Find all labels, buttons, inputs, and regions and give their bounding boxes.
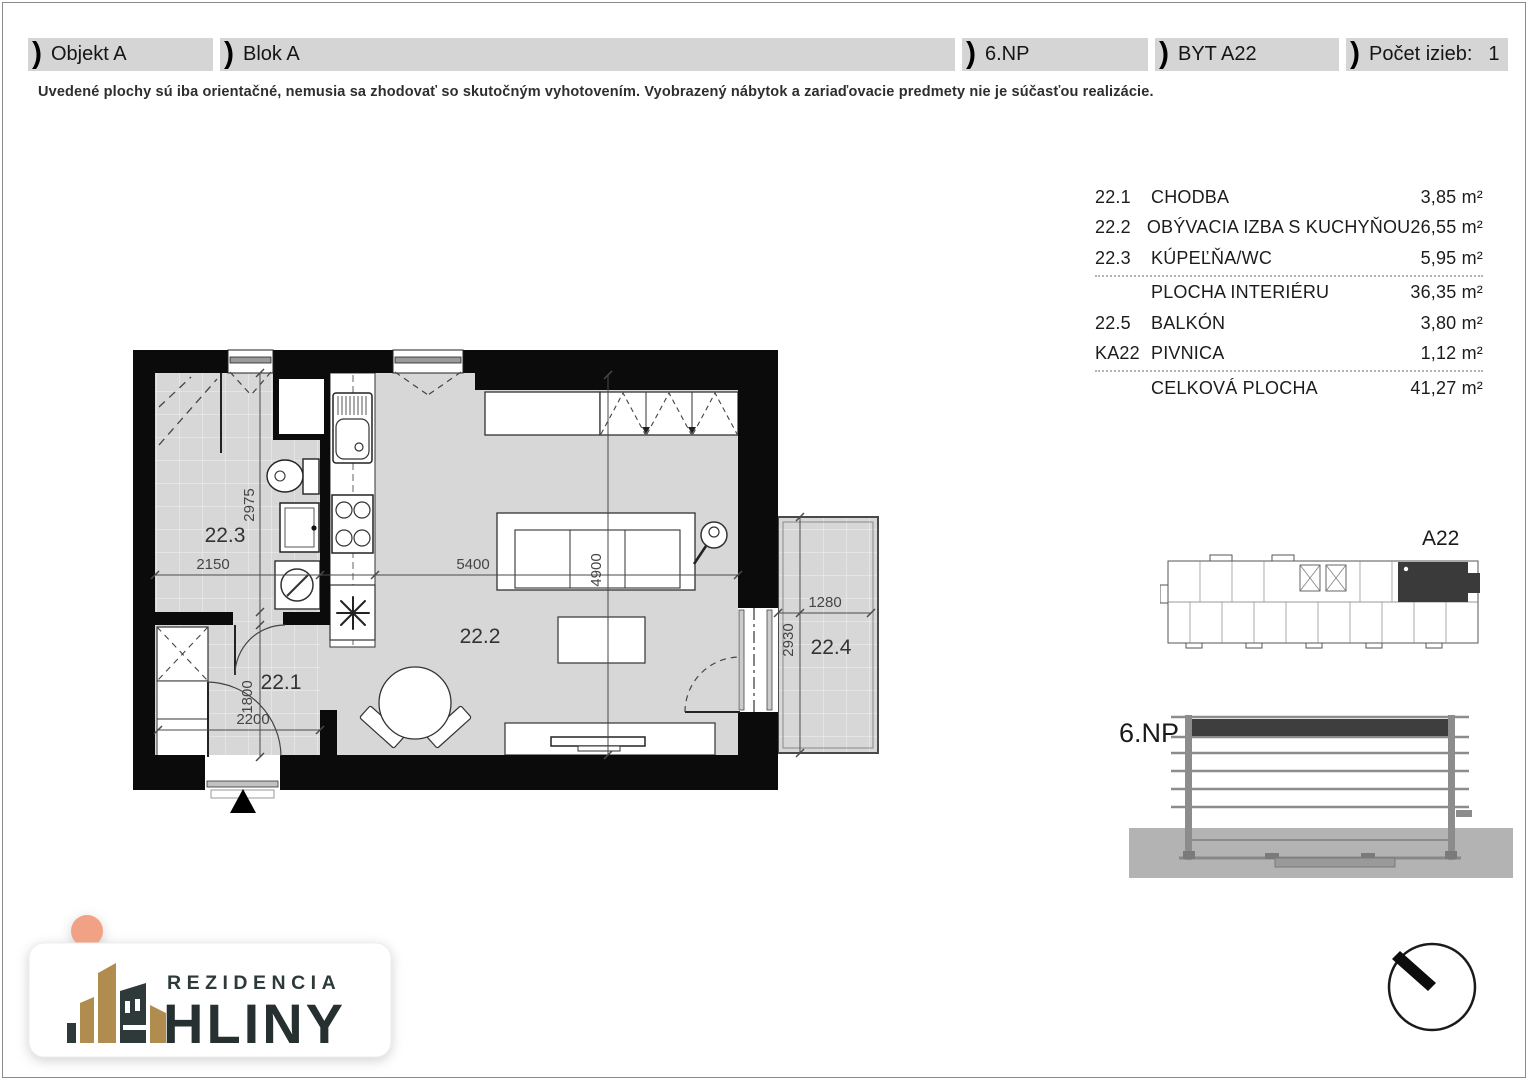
chevron-icon (1349, 40, 1360, 70)
table-row-total: CELKOVÁ PLOCHA 41,27 m² (1095, 373, 1483, 404)
floor-plan-drawing: 2150 5400 2200 2975 1800 4900 1280 2930 … (133, 345, 895, 815)
plan-sheet-page: Objekt A Blok A 6.NP BYT A22 Počet izieb… (0, 0, 1528, 1080)
room-code: 22.3 (1095, 248, 1151, 269)
dim-5400: 5400 (456, 556, 489, 573)
chevron-icon (31, 40, 42, 70)
room-label-22-1: 22.1 (261, 671, 302, 694)
dim-2930: 2930 (780, 623, 797, 656)
room-code: 22.2 (1095, 217, 1147, 238)
header-section-objekt: Objekt A (28, 38, 213, 71)
table-row-subtotal: PLOCHA INTERIÉRU 36,35 m² (1095, 278, 1483, 309)
room-name: KÚPEĽŇA/WC (1151, 248, 1421, 269)
room-name: CHODBA (1151, 187, 1421, 208)
dim-4900: 4900 (588, 553, 605, 586)
highlighted-apartment (1398, 562, 1480, 602)
disclaimer-text: Uvedené plochy sú iba orientačné, nemusi… (38, 84, 1188, 100)
floor-label: 6.NP (985, 43, 1029, 66)
table-separator (1095, 370, 1483, 372)
table-row: 22.2 OBÝVACIA IZBA S KUCHYŇOU 26,55 m² (1095, 213, 1483, 244)
room-area: 5,95 m² (1421, 248, 1483, 269)
header-band: Objekt A Blok A 6.NP BYT A22 Počet izieb… (28, 38, 1508, 71)
north-compass-icon (1382, 938, 1482, 1038)
table-row: 22.3 KÚPEĽŇA/WC 5,95 m² (1095, 243, 1483, 274)
brand-name-bottom: HLINY (163, 992, 346, 1055)
room-area: 1,12 m² (1421, 343, 1483, 364)
hall-wardrobe (157, 627, 208, 757)
fridge-snowflake-icon (330, 585, 375, 640)
washing-machine (275, 561, 320, 609)
room-name: PIVNICA (1151, 343, 1421, 364)
rooms-count-label: Počet izieb: (1369, 43, 1472, 66)
header-section-floor: 6.NP (962, 38, 1148, 71)
chevron-icon (1158, 40, 1169, 70)
tv-stand (505, 723, 715, 755)
elevation-diagram: 6.NP (1115, 700, 1525, 890)
header-section-byt: BYT A22 (1155, 38, 1339, 71)
header-section-rooms: Počet izieb: 1 (1346, 38, 1508, 71)
room-area: 3,80 m² (1421, 313, 1483, 334)
room-name: BALKÓN (1151, 313, 1421, 334)
room-name: OBÝVACIA IZBA S KUCHYŇOU (1147, 217, 1411, 238)
room-area: 36,35 m² (1410, 282, 1483, 303)
room-area: 41,27 m² (1410, 378, 1483, 399)
room-code: 22.1 (1095, 187, 1151, 208)
logo-sun-icon (71, 915, 103, 947)
room-area: 26,55 m² (1410, 217, 1483, 238)
room-name: CELKOVÁ PLOCHA (1151, 378, 1410, 399)
room-code: 22.5 (1095, 313, 1151, 334)
wardrobe (600, 392, 738, 435)
utility-shaft (273, 373, 330, 440)
room-name: PLOCHA INTERIÉRU (1151, 282, 1410, 303)
dim-2975: 2975 (241, 488, 258, 521)
area-table: 22.1 CHODBA 3,85 m² 22.2 OBÝVACIA IZBA S… (1095, 182, 1483, 404)
room-label-22-3: 22.3 (205, 524, 246, 547)
stove (332, 495, 373, 553)
highlighted-floor-band (1192, 719, 1448, 736)
table-row: 22.5 BALKÓN 3,80 m² (1095, 308, 1483, 339)
sideboard (485, 392, 600, 435)
keyplan-diagram: A22 (1160, 525, 1500, 655)
objekt-label: Objekt A (51, 43, 127, 66)
dim-1800: 1800 (239, 680, 256, 713)
chevron-icon (965, 40, 976, 70)
table-row: 22.1 CHODBA 3,85 m² (1095, 182, 1483, 213)
brand-logo: REZIDENCIA HLINY (25, 903, 397, 1075)
elevation-floor-label: 6.NP (1119, 718, 1179, 748)
dim-1280: 1280 (808, 594, 841, 611)
brand-name-top: REZIDENCIA (167, 972, 341, 994)
room-area: 3,85 m² (1421, 187, 1483, 208)
room-label-22-2: 22.2 (460, 625, 501, 648)
table-row: KA22 PIVNICA 1,12 m² (1095, 339, 1483, 370)
table-separator (1095, 275, 1483, 277)
toilet (267, 459, 319, 494)
header-section-blok: Blok A (220, 38, 955, 71)
kitchen-sink (333, 393, 372, 463)
blok-label: Blok A (243, 43, 300, 66)
rooms-count-value: 1 (1488, 43, 1499, 66)
dim-2150: 2150 (196, 556, 229, 573)
washbasin (280, 503, 319, 552)
byt-label: BYT A22 (1178, 43, 1257, 66)
coffee-table (558, 617, 645, 663)
room-label-22-4: 22.4 (811, 636, 852, 659)
room-code: KA22 (1095, 343, 1151, 364)
chevron-icon (223, 40, 234, 70)
keyplan-label: A22 (1422, 527, 1459, 550)
